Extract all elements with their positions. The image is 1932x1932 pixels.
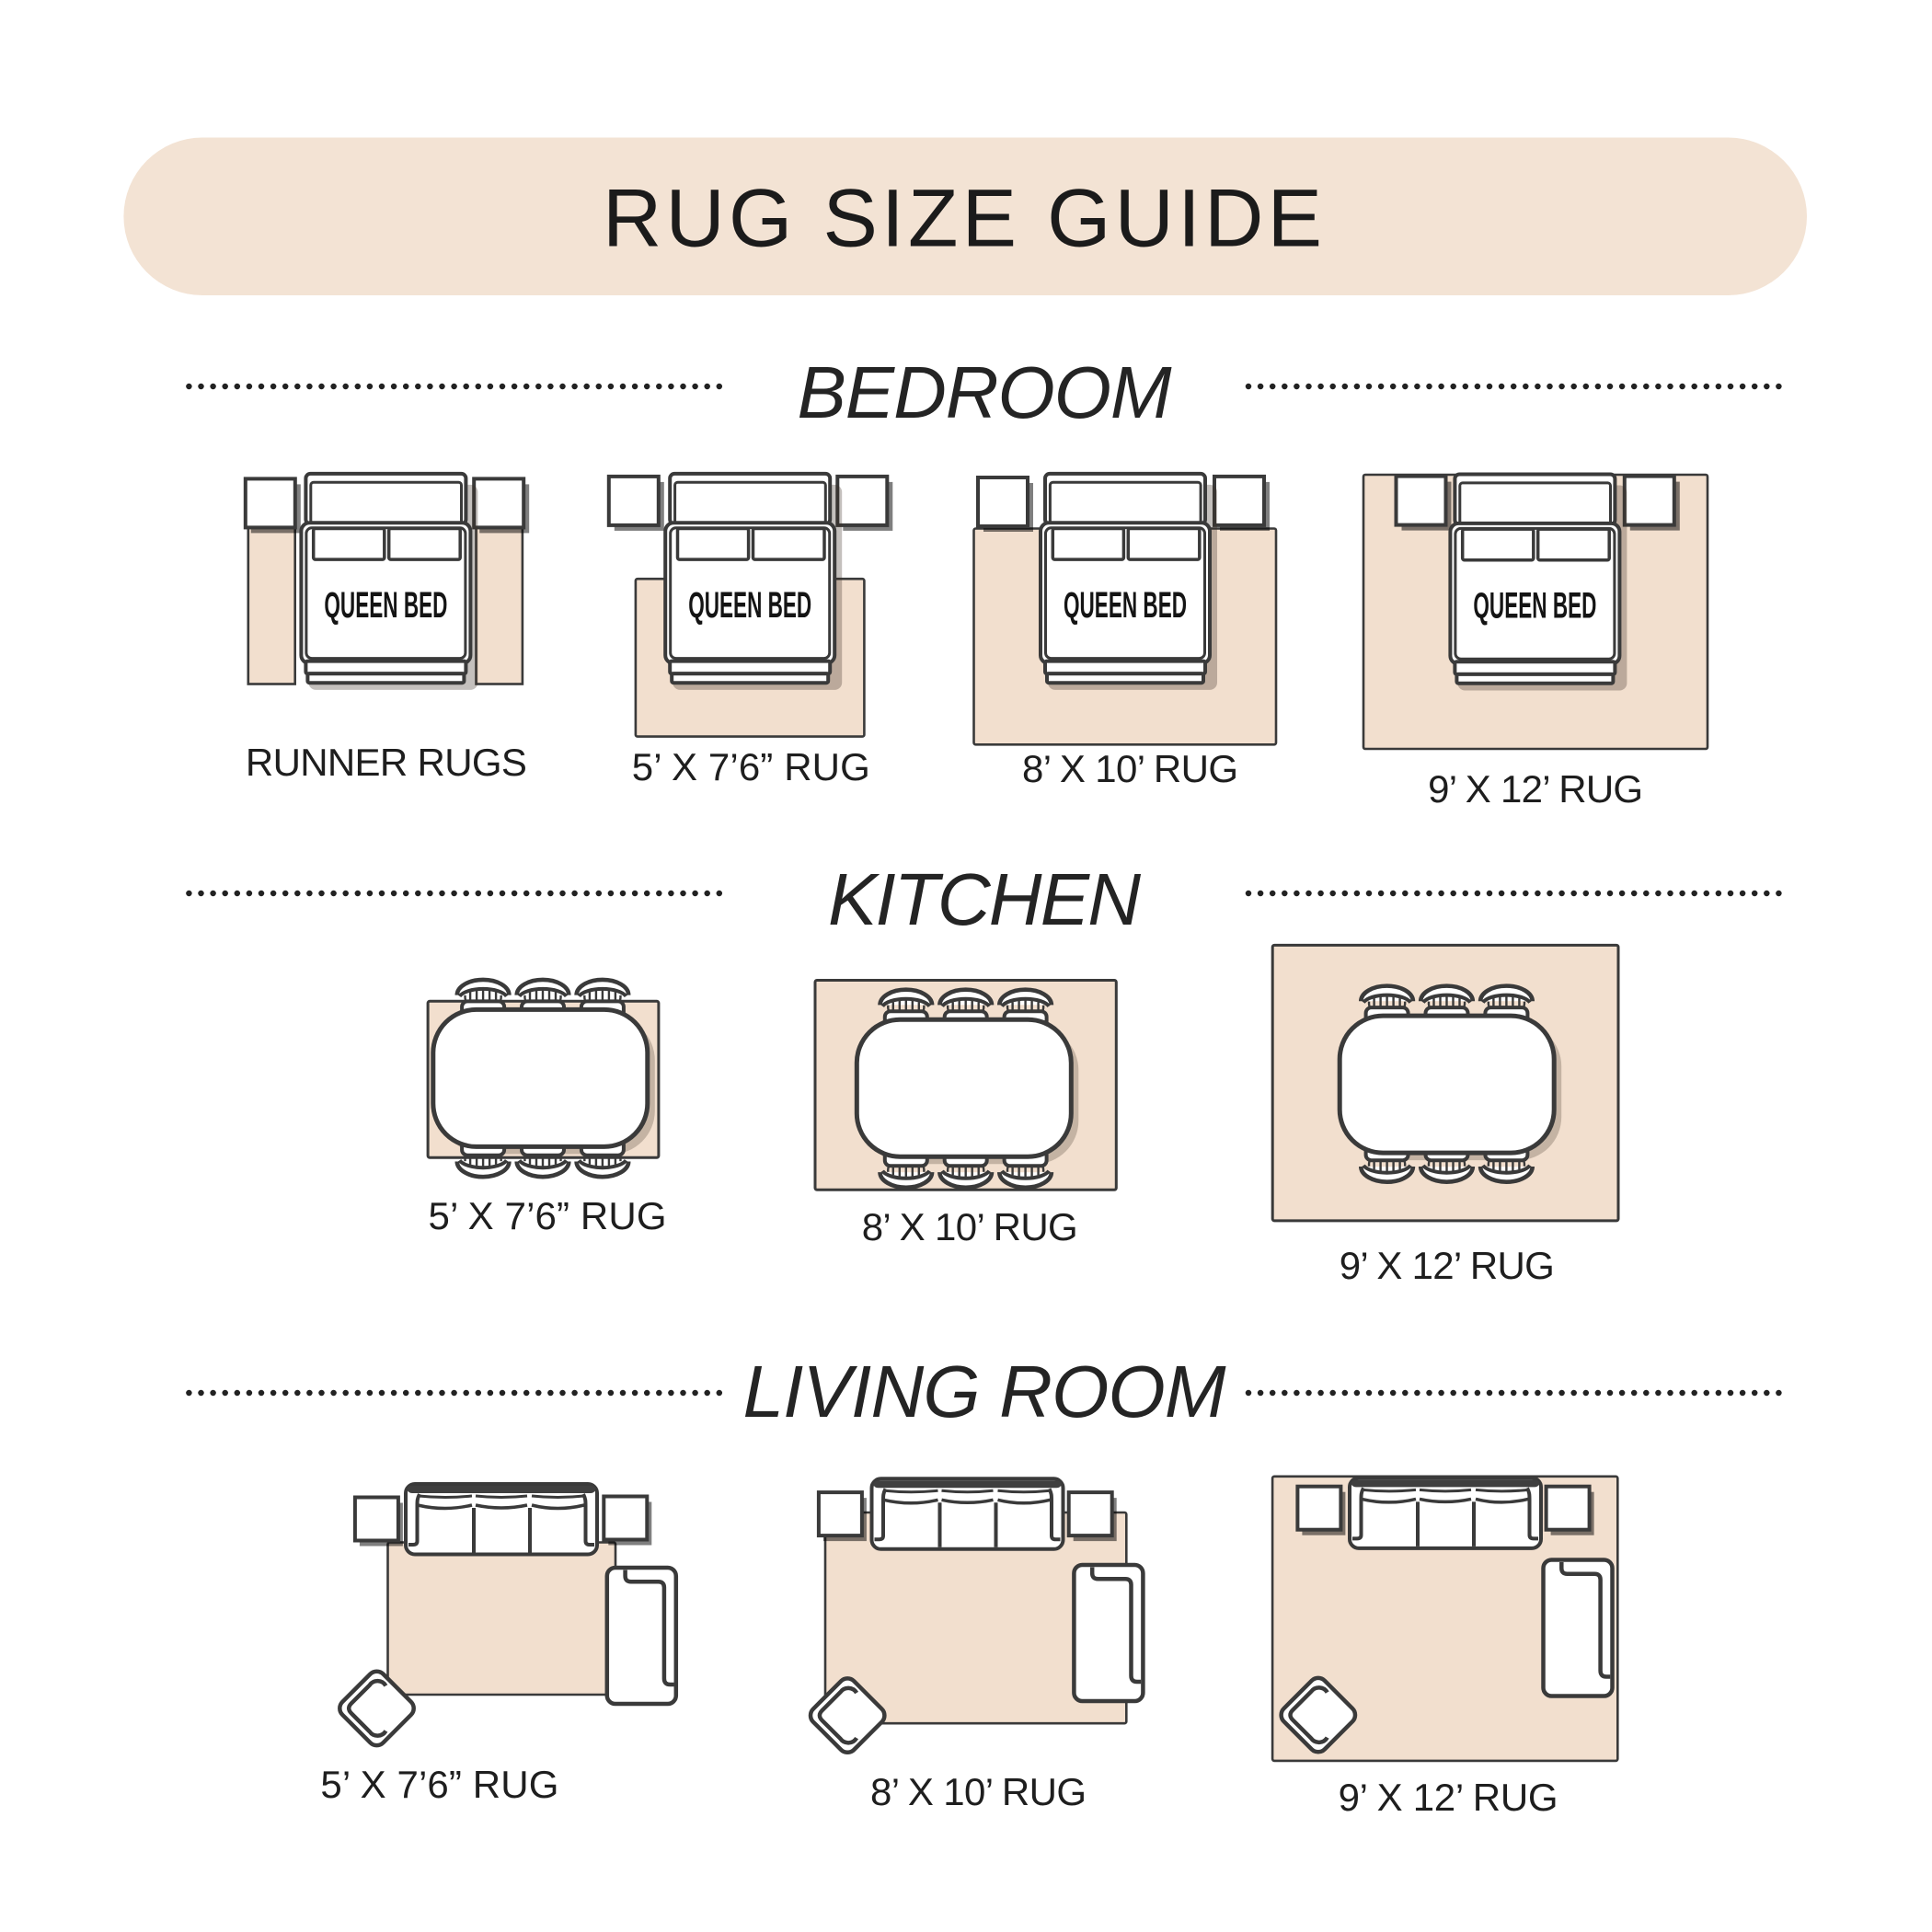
svg-text:5’ X 7’6” RUG: 5’ X 7’6” RUG (320, 1763, 558, 1806)
svg-text:9’ X 12’ RUG: 9’ X 12’ RUG (1428, 767, 1643, 811)
svg-text:5’ X 7’6” RUG: 5’ X 7’6” RUG (632, 745, 870, 788)
svg-text:KITCHEN: KITCHEN (828, 858, 1141, 940)
svg-text:RUG SIZE GUIDE: RUG SIZE GUIDE (603, 172, 1322, 264)
svg-text:RUNNER RUGS: RUNNER RUGS (246, 741, 527, 784)
svg-text:5’ X 7’6” RUG: 5’ X 7’6” RUG (429, 1194, 667, 1237)
svg-text:BEDROOM: BEDROOM (798, 351, 1172, 433)
svg-text:8’ X 10’ RUG: 8’ X 10’ RUG (870, 1770, 1087, 1813)
svg-text:9’ X 12’ RUG: 9’ X 12’ RUG (1340, 1244, 1555, 1287)
svg-text:9’ X 12’ RUG: 9’ X 12’ RUG (1339, 1776, 1558, 1819)
svg-text:8’ X 10’ RUG: 8’ X 10’ RUG (1022, 747, 1238, 790)
svg-text:LIVING ROOM: LIVING ROOM (743, 1351, 1226, 1432)
svg-text:8’ X 10’ RUG: 8’ X 10’ RUG (862, 1205, 1078, 1248)
